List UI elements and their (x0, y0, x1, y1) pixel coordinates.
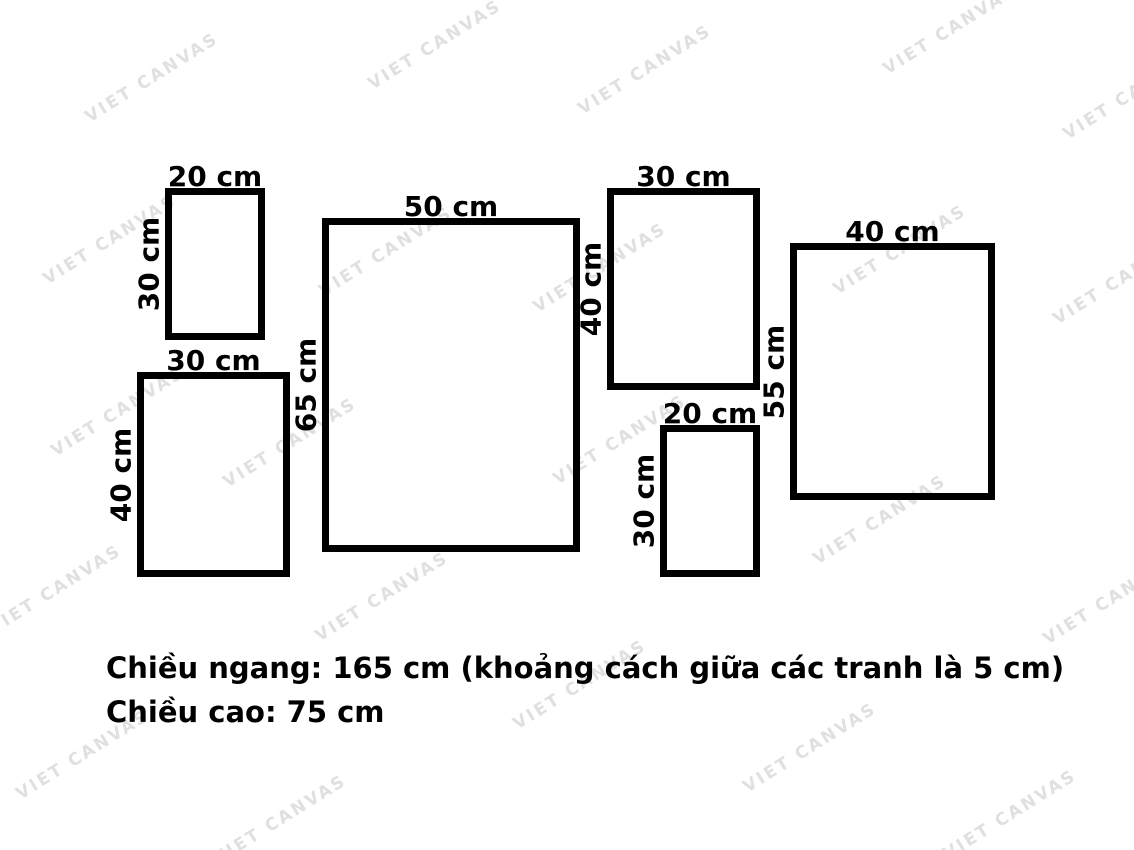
frame-20x30-bottom-middle: 20 cm30 cm (660, 425, 760, 577)
frame-height-label-box: 30 cm (131, 195, 167, 333)
frame-height-label: 55 cm (760, 324, 788, 419)
frame-height-label: 30 cm (135, 217, 163, 312)
frame-50x65-center: 50 cm65 cm (322, 218, 580, 552)
frame-height-label: 30 cm (630, 454, 658, 549)
frame-height-label: 40 cm (577, 242, 605, 337)
frame-width-label: 50 cm (404, 192, 499, 223)
frame-height-label-box: 40 cm (103, 379, 139, 570)
frame-width-label: 30 cm (166, 346, 261, 377)
frame-width-label: 20 cm (168, 162, 263, 193)
frame-30x40-top-middle: 30 cm40 cm (607, 188, 760, 390)
frame-height-label-box: 55 cm (756, 250, 792, 493)
frame-layout-diagram: VIET CANVASVIET CANVASVIET CANVASVIET CA… (0, 0, 1134, 850)
caption: Chiều ngang: 165 cm (khoảng cách giữa cá… (106, 646, 1064, 734)
frame-height-label: 65 cm (292, 338, 320, 433)
frame-40x55-right: 40 cm55 cm (790, 243, 995, 500)
frame-width-label: 40 cm (845, 217, 940, 248)
frame-width-label: 30 cm (636, 162, 731, 193)
frame-20x30-top-left: 20 cm30 cm (165, 188, 265, 340)
caption-line-height: Chiều cao: 75 cm (106, 690, 1064, 734)
frame-30x40-bottom-left: 30 cm40 cm (137, 372, 290, 577)
frame-height-label: 40 cm (107, 427, 135, 522)
frame-height-label-box: 30 cm (626, 432, 662, 570)
frame-width-label: 20 cm (663, 399, 758, 430)
caption-line-width: Chiều ngang: 165 cm (khoảng cách giữa cá… (106, 646, 1064, 690)
frame-height-label-box: 65 cm (288, 225, 324, 545)
frame-height-label-box: 40 cm (573, 195, 609, 383)
